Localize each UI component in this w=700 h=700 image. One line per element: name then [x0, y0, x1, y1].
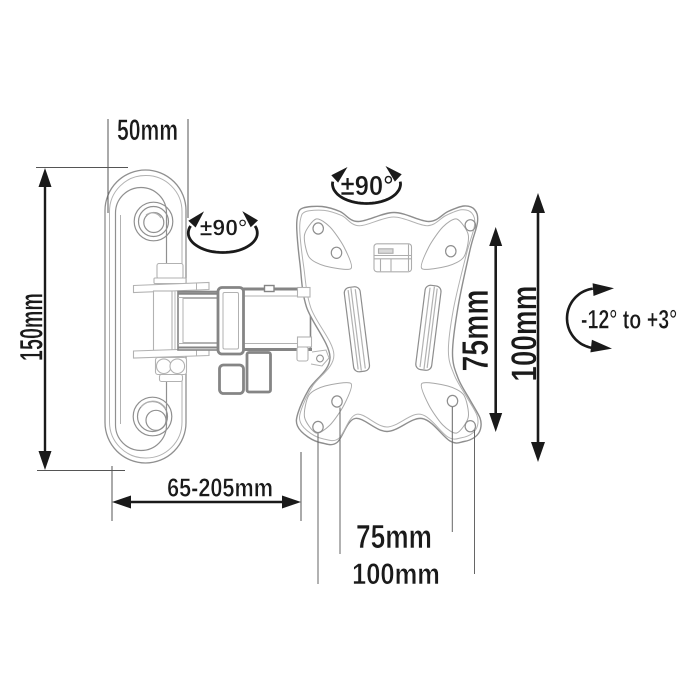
svg-text:±90°: ±90° [200, 215, 247, 241]
svg-text:75mm: 75mm [454, 289, 496, 371]
svg-text:100mm: 100mm [352, 557, 440, 590]
svg-text:±90°: ±90° [340, 170, 393, 201]
svg-text:75mm: 75mm [356, 519, 432, 555]
svg-text:65-205mm: 65-205mm [167, 474, 273, 503]
svg-text:100mm: 100mm [504, 286, 544, 382]
svg-text:50mm: 50mm [117, 115, 178, 147]
svg-text:150mm: 150mm [13, 293, 49, 361]
svg-text:-12° to +3°: -12° to +3° [581, 306, 677, 336]
